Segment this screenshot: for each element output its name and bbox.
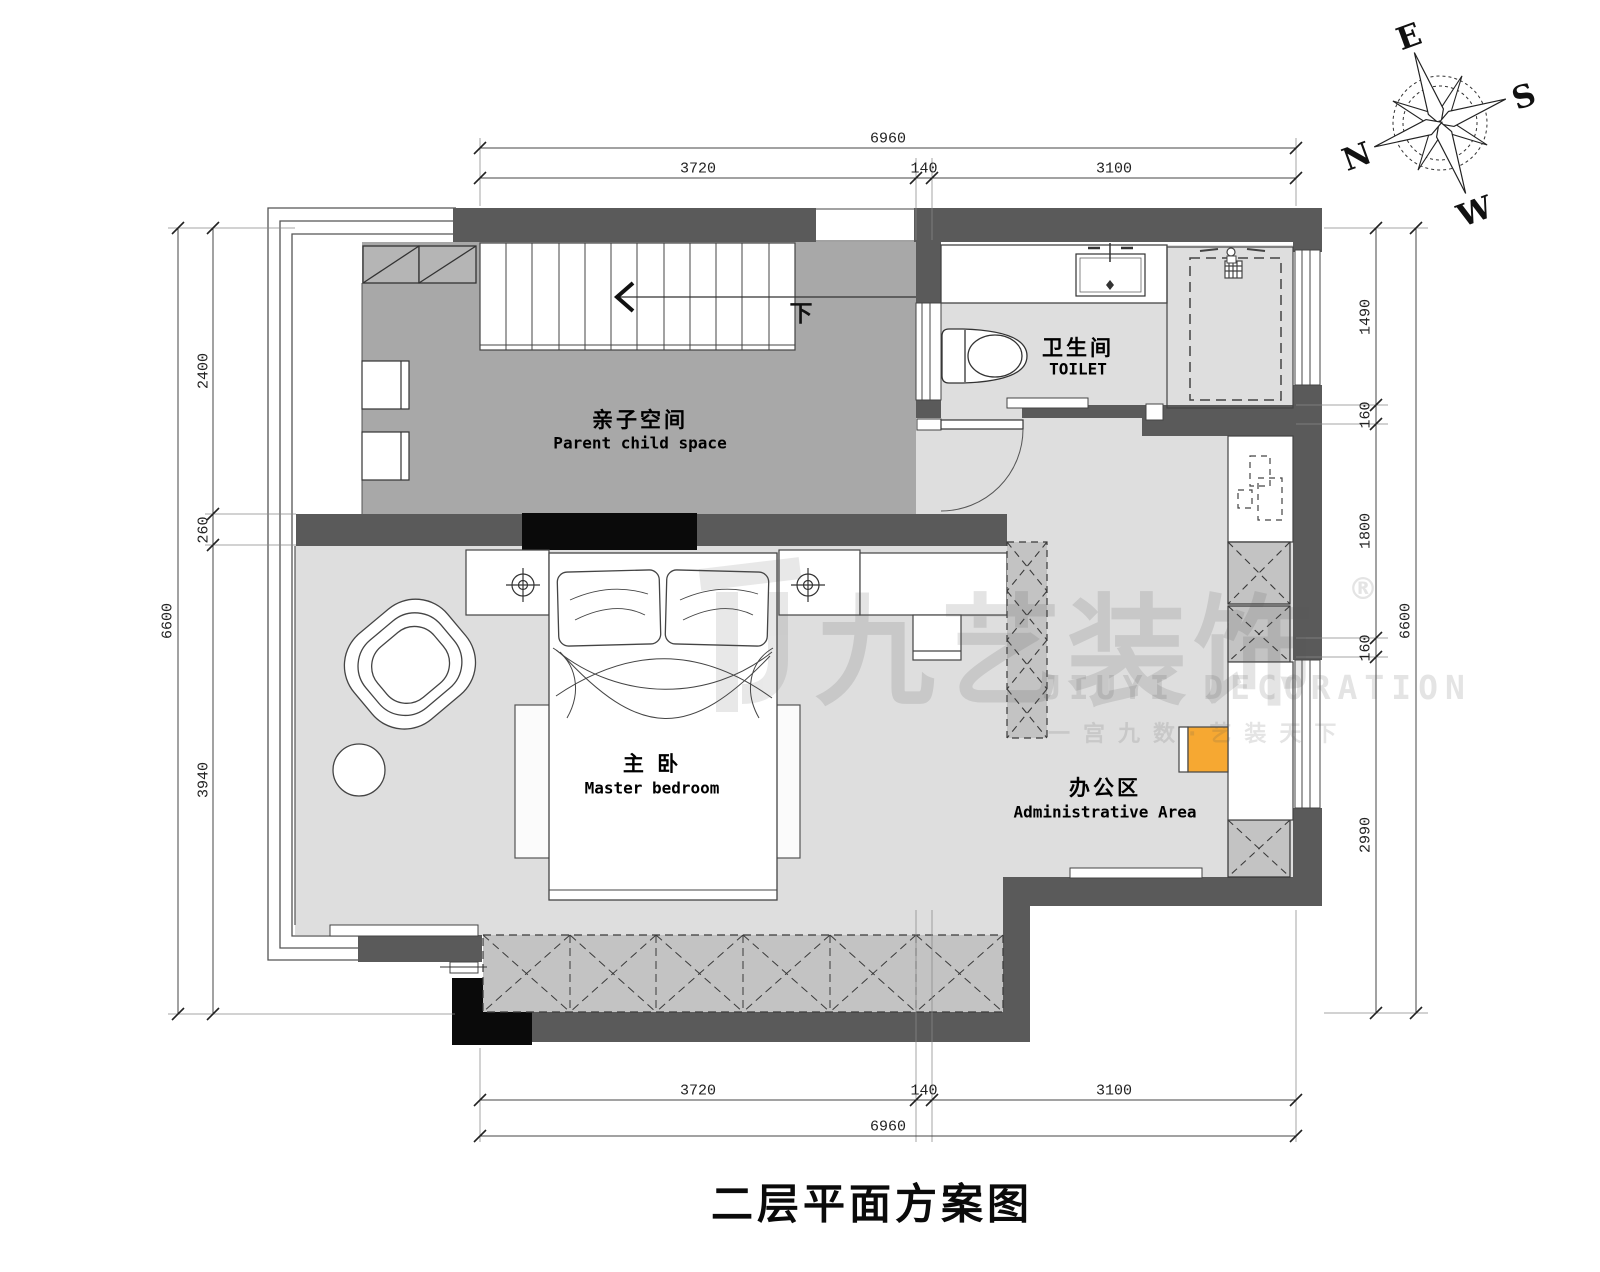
dim-top-s2: 140: [910, 161, 937, 178]
desk-chair: [913, 615, 961, 660]
bottom-wall-right: [1003, 877, 1322, 906]
floor-plan-page: 九艺装饰 ® JIUYI DECORATION 一宫九数·艺装天下 亲子空间 P…: [0, 0, 1600, 1272]
room-label-toilet-zh: 卫生间: [1042, 332, 1114, 362]
dim-right-total: 6600: [1398, 603, 1415, 639]
bed: [549, 553, 777, 900]
dim-left-total: 6600: [160, 603, 177, 639]
dim-top-total: 6960: [870, 131, 906, 148]
room-label-parent-child-en: Parent child space: [553, 434, 726, 453]
storage-cabinets: [363, 246, 476, 283]
room-label-office-zh: 办公区: [1069, 772, 1141, 802]
top-wall-left: [453, 208, 816, 242]
office-desk: [1228, 662, 1293, 820]
window-partition-toilet: [916, 303, 941, 400]
curtain-box: [522, 513, 697, 550]
dim-left-s2: 260: [196, 516, 213, 543]
wardrobe: [483, 935, 1003, 1012]
office-hatch-column: [1007, 542, 1047, 738]
dim-bottom-s3: 3100: [1096, 1083, 1132, 1100]
stair-down-label: 下: [790, 294, 813, 328]
room-label-office-en: Administrative Area: [1013, 803, 1196, 822]
nightstand-left: [466, 550, 549, 615]
dim-bottom-total: 6960: [870, 1119, 906, 1136]
stair-landing-opening: [816, 209, 914, 241]
dim-right-s3: 1800: [1358, 513, 1375, 549]
room-label-master-zh: 主 卧: [623, 748, 681, 778]
office-right-cabinets: [1228, 436, 1293, 877]
room-label-master-en: Master bedroom: [585, 779, 720, 798]
office-chair: [1179, 727, 1228, 772]
window-right-bottom: [1295, 660, 1320, 808]
dim-right-s5: 2990: [1358, 817, 1375, 853]
dim-right-s1: 1490: [1358, 299, 1375, 335]
compass-icon: [1345, 27, 1535, 218]
bottom-wall-left: [455, 1012, 1030, 1042]
dim-top-s3: 3100: [1096, 161, 1132, 178]
dim-bottom-s2: 140: [910, 1083, 937, 1100]
page-title: 二层平面方案图: [711, 1171, 1033, 1232]
room-label-toilet-en: TOILET: [1049, 360, 1107, 379]
dim-top-s1: 3720: [680, 161, 716, 178]
room-label-parent-child-zh: 亲子空间: [592, 404, 688, 434]
dim-bottom-s1: 3720: [680, 1083, 716, 1100]
dim-right-s4: 160: [1358, 634, 1375, 661]
shower-head-icon: [1225, 261, 1242, 278]
ottoman: [333, 744, 385, 796]
dim-right-s2: 160: [1358, 401, 1375, 428]
door-leaf: [941, 420, 1023, 429]
window-right-top: [1295, 250, 1320, 385]
dim-left-s1: 2400: [196, 353, 213, 389]
top-wall-right: [914, 208, 1322, 242]
dim-left-s3: 3940: [196, 762, 213, 798]
vanity: [941, 243, 1167, 303]
shelf: [1007, 398, 1088, 408]
